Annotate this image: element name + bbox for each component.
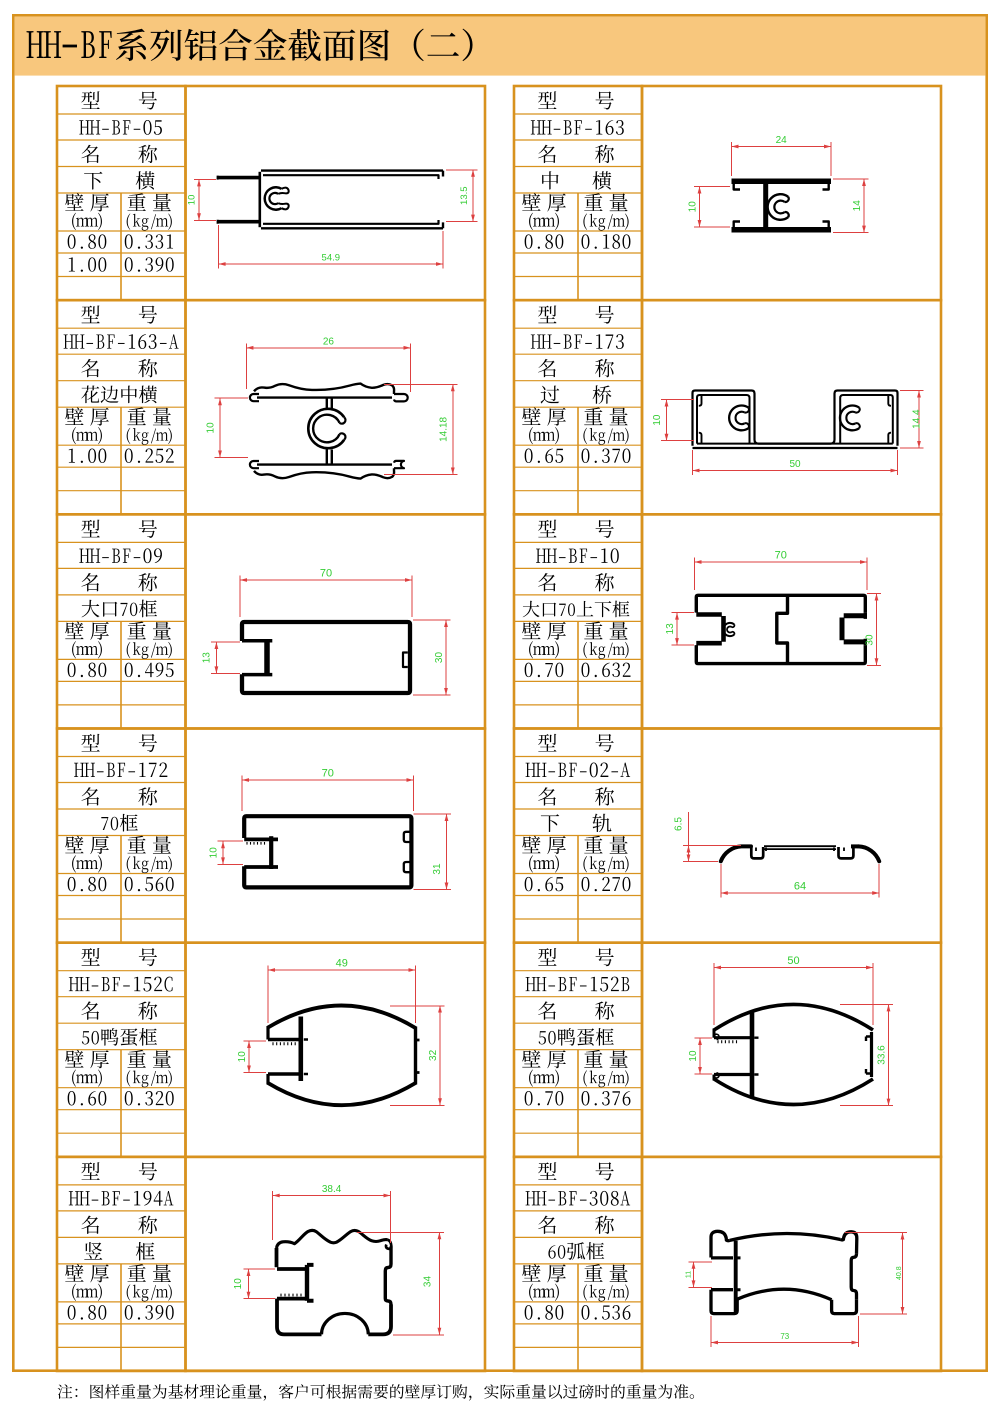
svg-text:70: 70 [320, 568, 332, 580]
svg-text:38.4: 38.4 [322, 1184, 342, 1195]
svg-text:30: 30 [434, 652, 445, 664]
svg-text:10: 10 [233, 1278, 244, 1290]
svg-text:26: 26 [323, 336, 335, 347]
svg-text:40.8: 40.8 [896, 1266, 903, 1280]
svg-text:32: 32 [428, 1049, 439, 1061]
svg-text:34: 34 [423, 1276, 434, 1288]
svg-text:50: 50 [787, 955, 799, 967]
svg-text:30: 30 [865, 634, 876, 646]
svg-text:31: 31 [432, 863, 443, 875]
svg-text:50: 50 [789, 459, 801, 470]
svg-text:24: 24 [776, 135, 788, 146]
svg-text:14.4: 14.4 [912, 409, 923, 429]
svg-text:54.9: 54.9 [322, 253, 341, 264]
svg-text:6.5: 6.5 [674, 817, 685, 831]
svg-text:10: 10 [205, 422, 216, 434]
svg-text:10: 10 [652, 414, 663, 426]
svg-text:10: 10 [688, 201, 699, 213]
svg-text:70: 70 [775, 550, 787, 562]
svg-text:13.5: 13.5 [459, 186, 470, 205]
svg-text:13: 13 [202, 652, 213, 664]
svg-text:64: 64 [794, 881, 806, 893]
svg-text:33.6: 33.6 [877, 1045, 888, 1065]
svg-text:49: 49 [336, 958, 348, 970]
svg-text:10: 10 [688, 1050, 699, 1062]
svg-text:11: 11 [686, 1271, 693, 1278]
svg-text:10: 10 [237, 1051, 248, 1063]
svg-text:14.18: 14.18 [438, 416, 449, 441]
svg-text:73: 73 [780, 1332, 789, 1341]
svg-text:13: 13 [665, 623, 676, 635]
svg-text:10: 10 [187, 195, 198, 206]
svg-text:70: 70 [322, 768, 334, 780]
svg-text:14: 14 [852, 200, 863, 212]
svg-text:10: 10 [208, 847, 219, 859]
